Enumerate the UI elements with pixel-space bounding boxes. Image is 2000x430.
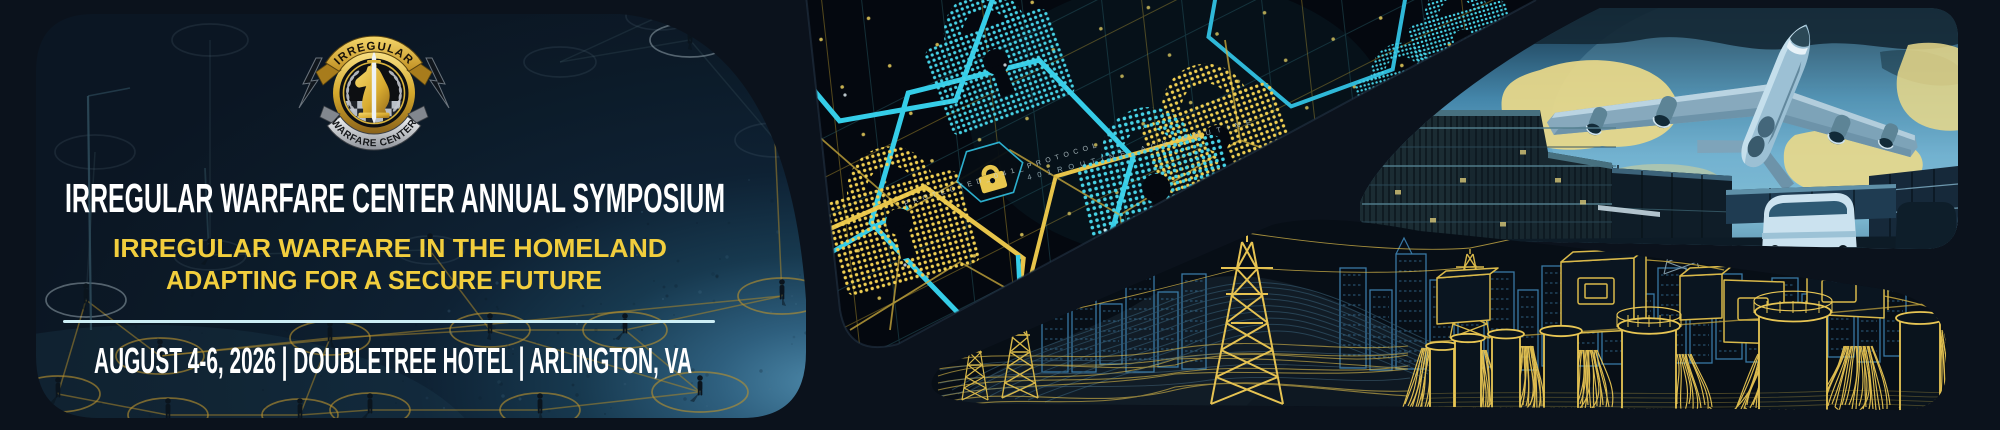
svg-text:IRREGULAR WARFARE IN THE HOMEL: IRREGULAR WARFARE IN THE HOMELAND <box>113 235 667 263</box>
svg-text:ADAPTING FOR A SECURE FUTURE: ADAPTING FOR A SECURE FUTURE <box>166 267 602 295</box>
svg-text:AUGUST 4-6, 2026 | DOUBLETREE: AUGUST 4-6, 2026 | DOUBLETREE HOTEL | AR… <box>94 340 692 382</box>
svg-text:IRREGULAR WARFARE CENTER ANNUA: IRREGULAR WARFARE CENTER ANNUAL SYMPOSIU… <box>65 175 725 221</box>
